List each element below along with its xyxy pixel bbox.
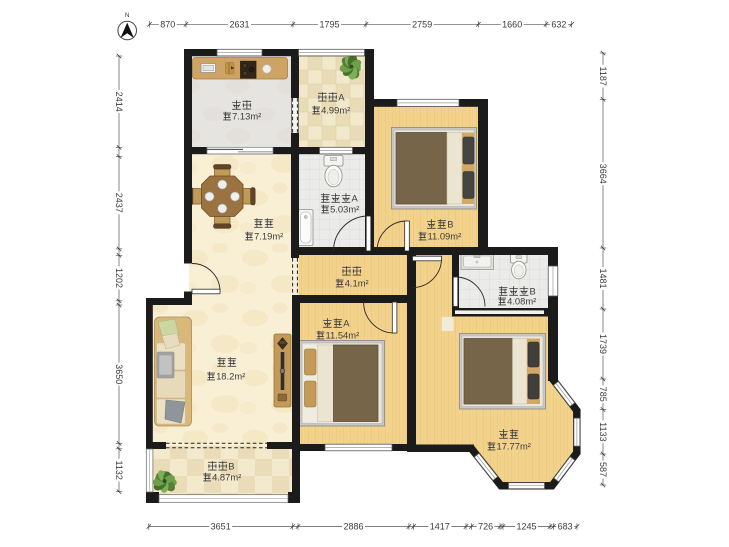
- svg-text:1795: 1795: [319, 19, 339, 29]
- svg-text:B: B: [447, 218, 453, 229]
- svg-text:726: 726: [478, 522, 493, 532]
- svg-text:1132: 1132: [114, 461, 124, 480]
- svg-text:1202: 1202: [114, 268, 124, 288]
- svg-text:1660: 1660: [502, 19, 522, 29]
- svg-text:4.08m²: 4.08m²: [507, 295, 536, 306]
- svg-text:A: A: [338, 91, 345, 102]
- svg-text:N: N: [125, 13, 129, 19]
- svg-text:3664: 3664: [598, 164, 608, 184]
- svg-text:2759: 2759: [412, 19, 432, 29]
- svg-text:A: A: [343, 317, 350, 328]
- svg-text:2437: 2437: [114, 193, 124, 213]
- svg-text:5.03m²: 5.03m²: [330, 203, 359, 214]
- svg-text:11.09m²: 11.09m²: [428, 230, 462, 241]
- svg-text:2886: 2886: [343, 522, 363, 532]
- svg-text:1133: 1133: [598, 422, 608, 441]
- svg-text:4.87m²: 4.87m²: [212, 471, 241, 482]
- svg-text:1245: 1245: [516, 522, 536, 532]
- svg-text:1739: 1739: [598, 334, 608, 354]
- svg-text:17.77m²: 17.77m²: [497, 440, 531, 451]
- svg-text:2414: 2414: [114, 92, 124, 112]
- svg-text:1417: 1417: [430, 522, 450, 532]
- svg-text:7.19m²: 7.19m²: [254, 230, 283, 241]
- svg-text:2631: 2631: [229, 19, 249, 29]
- svg-text:7.13m²: 7.13m²: [232, 110, 261, 121]
- svg-text:4.1m²: 4.1m²: [345, 277, 369, 288]
- svg-text:870: 870: [160, 19, 175, 29]
- svg-text:1481: 1481: [598, 268, 608, 288]
- svg-text:632: 632: [551, 19, 566, 29]
- svg-text:785: 785: [598, 387, 608, 402]
- svg-text:4.99m²: 4.99m²: [321, 104, 350, 115]
- svg-text:A: A: [352, 192, 359, 203]
- svg-text:587: 587: [598, 462, 608, 477]
- svg-text:11.54m²: 11.54m²: [326, 329, 360, 340]
- svg-text:3651: 3651: [211, 522, 231, 532]
- svg-text:3650: 3650: [114, 364, 124, 384]
- svg-text:18.2m²: 18.2m²: [216, 370, 245, 381]
- svg-text:683: 683: [558, 522, 573, 532]
- svg-text:1187: 1187: [598, 67, 608, 86]
- svg-text:B: B: [228, 460, 234, 471]
